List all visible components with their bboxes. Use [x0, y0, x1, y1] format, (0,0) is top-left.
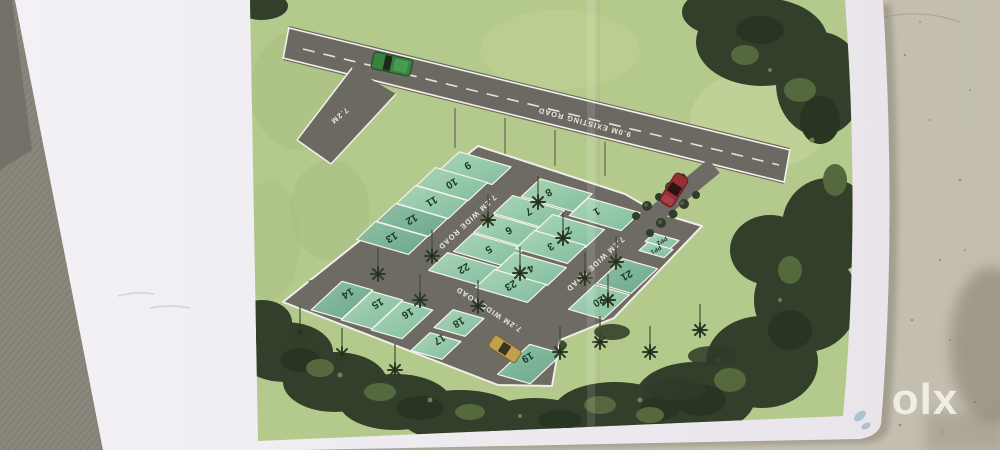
- photo-of-site-plan: 9.0M EXISTING ROAD 7.2M: [0, 0, 1000, 450]
- paper-crease-line: [598, 0, 600, 450]
- site-plan-photo: 9.0M EXISTING ROAD 7.2M: [0, 0, 1000, 450]
- paper-crease: [587, 0, 595, 450]
- olx-watermark: olx: [892, 375, 959, 424]
